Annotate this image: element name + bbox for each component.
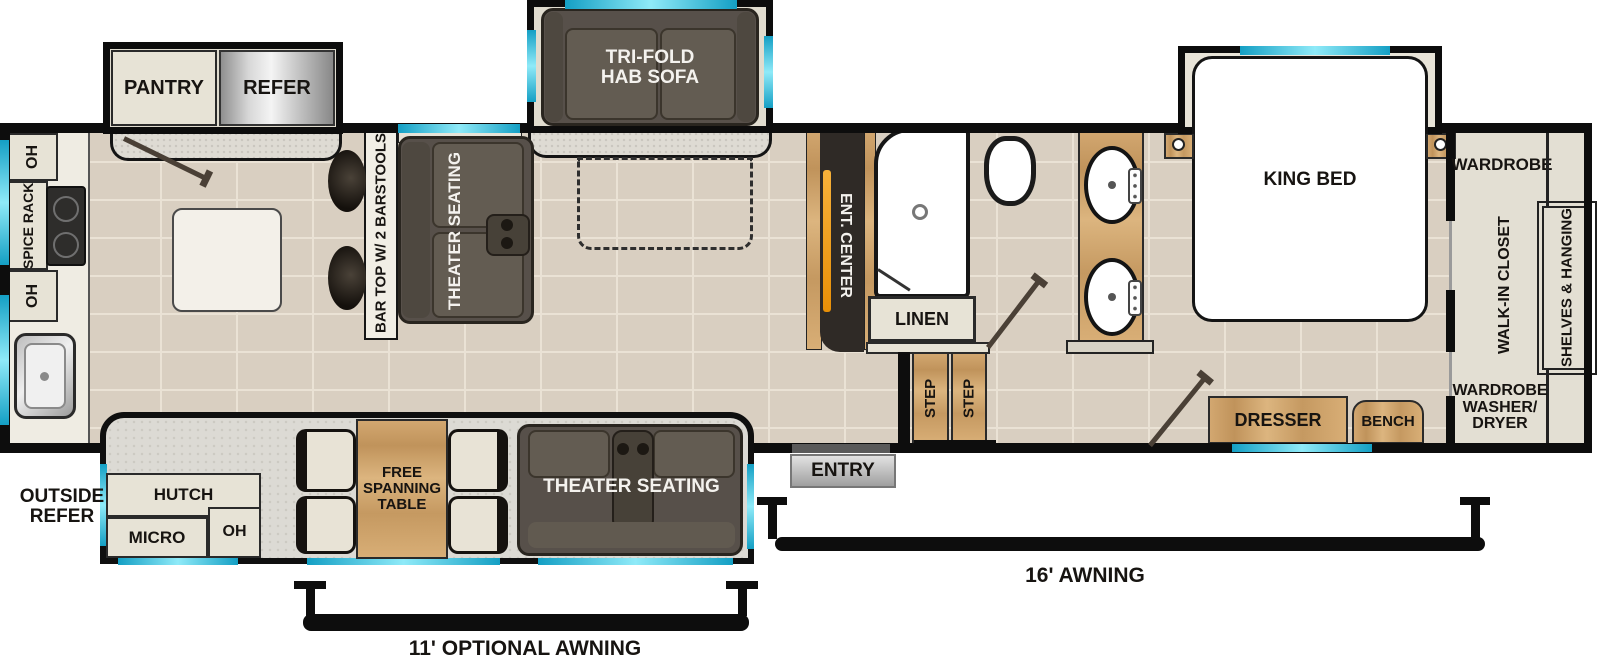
sink-drain-icon	[1108, 181, 1116, 189]
bench-label: BENCH	[1352, 400, 1424, 444]
trifold-bed-extension	[577, 157, 753, 250]
window	[398, 124, 520, 133]
table-label: FREE SPANNING TABLE	[356, 419, 448, 559]
window	[565, 0, 737, 9]
window	[1232, 444, 1372, 452]
theater-lower-label: THEATER SEATING	[528, 472, 735, 502]
awning-11-bracket-stem	[738, 589, 747, 616]
awning-11-label: 11' OPTIONAL AWNING	[380, 635, 670, 661]
pantry-label: PANTRY	[111, 50, 217, 126]
awning-16-label: 16' AWNING	[1000, 562, 1170, 590]
window	[747, 464, 754, 549]
soap-tray-icon	[1128, 280, 1142, 316]
overhead-cabinet-upper-label: OH	[8, 133, 58, 181]
window	[527, 30, 536, 102]
overhead-cabinet-lower-label: OH	[8, 270, 58, 322]
toilet	[984, 136, 1036, 206]
closet-slider-panel	[1446, 290, 1455, 352]
entry-threshold	[792, 444, 890, 453]
awning-11-bracket-stem	[306, 589, 315, 616]
bar-top-label: BAR TOP W/ 2 BARSTOOLS	[364, 126, 398, 340]
window	[538, 558, 733, 565]
burner-icon	[53, 232, 79, 258]
window	[0, 295, 9, 425]
walk-in-closet-label: WALK-IN CLOSET	[1490, 200, 1520, 370]
barstool	[328, 150, 366, 212]
cupholder-icon	[637, 443, 649, 455]
step-label: STEP	[912, 352, 949, 444]
spice-rack-label: SPICE RACK	[8, 181, 48, 270]
awning-16-bracket-cap	[1460, 497, 1490, 505]
window	[764, 36, 773, 108]
awning-11-bracket-cap	[294, 581, 326, 589]
closet-slider-panel	[1446, 133, 1455, 221]
theater-lower-seatfront	[528, 522, 735, 548]
wall-right	[1584, 123, 1592, 453]
outside-refer-label: OUTSIDE REFER	[14, 478, 110, 536]
shower-drain-icon	[912, 204, 928, 220]
dresser-label: DRESSER	[1208, 396, 1348, 444]
cupholder-icon	[501, 219, 513, 231]
dinette-chair	[296, 429, 356, 492]
wall-top	[8, 123, 105, 133]
nightstand-lamp-icon	[1172, 138, 1185, 151]
theater-upper-label: THEATER SEATING	[440, 146, 470, 316]
sink-drain-icon	[40, 372, 49, 381]
dinette-chair	[448, 496, 508, 554]
burner-icon	[53, 196, 79, 222]
awning-11-bar	[303, 614, 749, 631]
linen-label: LINEN	[868, 296, 976, 342]
vanity-end-cap	[1066, 340, 1154, 354]
barstool	[328, 246, 366, 310]
sink-drain-icon	[1108, 293, 1116, 301]
sofa-slide-boundary	[528, 131, 772, 158]
closet-divider	[1546, 131, 1549, 209]
king-bed-headboard	[1192, 56, 1428, 134]
window	[118, 558, 238, 565]
wardrobe-label: WARDROBE	[1456, 152, 1548, 178]
refer-label: REFER	[219, 50, 335, 126]
ent-center-label: ENT. CENTER	[830, 150, 860, 340]
soap-tray-icon	[1128, 168, 1142, 204]
theater-lower-back	[528, 430, 610, 478]
awning-16-bracket-stem	[768, 505, 777, 539]
awning-16-bar	[775, 537, 1485, 551]
window	[0, 140, 9, 265]
step-wall	[898, 352, 910, 448]
cupholder-icon	[501, 237, 513, 249]
step-label: STEP	[951, 352, 987, 444]
trifold-sofa-label: TRI-FOLD HAB SOFA	[541, 40, 759, 96]
wall-top	[1442, 123, 1592, 133]
window	[307, 558, 500, 565]
dinette-chair	[448, 429, 508, 492]
theater-lower-back	[653, 430, 735, 478]
theater-upper-back	[402, 142, 430, 318]
wall-bottom	[0, 443, 103, 453]
awning-16-bracket-cap	[757, 497, 787, 505]
rv-floorplan: OH SPICE RACK OH BAR TOP W/ 2 BARSTOOLS …	[0, 0, 1600, 661]
dinette-chair	[296, 496, 356, 554]
window	[1240, 46, 1390, 55]
washer-dryer-label: WARDROBE WASHER/ DRYER	[1452, 376, 1548, 440]
cupholder-icon	[617, 443, 629, 455]
oh-slide-label: OH	[208, 507, 261, 558]
entry-label: ENTRY	[790, 454, 896, 488]
wall-top	[772, 123, 1178, 133]
king-bed-label: KING BED	[1192, 160, 1428, 200]
kitchen-island	[172, 208, 282, 312]
micro-label: MICRO	[106, 517, 208, 558]
awning-16-bracket-stem	[1471, 505, 1480, 539]
awning-11-bracket-cap	[726, 581, 758, 589]
